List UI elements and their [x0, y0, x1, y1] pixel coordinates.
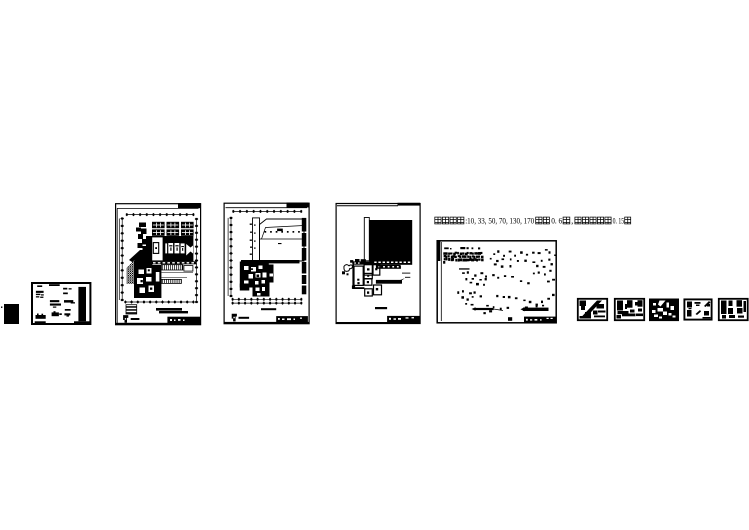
svg-text::10, 33, 50, 70, 130, 170: :10, 33, 50, 70, 130, 170: [465, 216, 534, 226]
svg-text:0. 6: 0. 6: [551, 216, 563, 226]
svg-text:,: ,: [571, 216, 573, 226]
svg-text:0. 15: 0. 15: [613, 216, 625, 226]
